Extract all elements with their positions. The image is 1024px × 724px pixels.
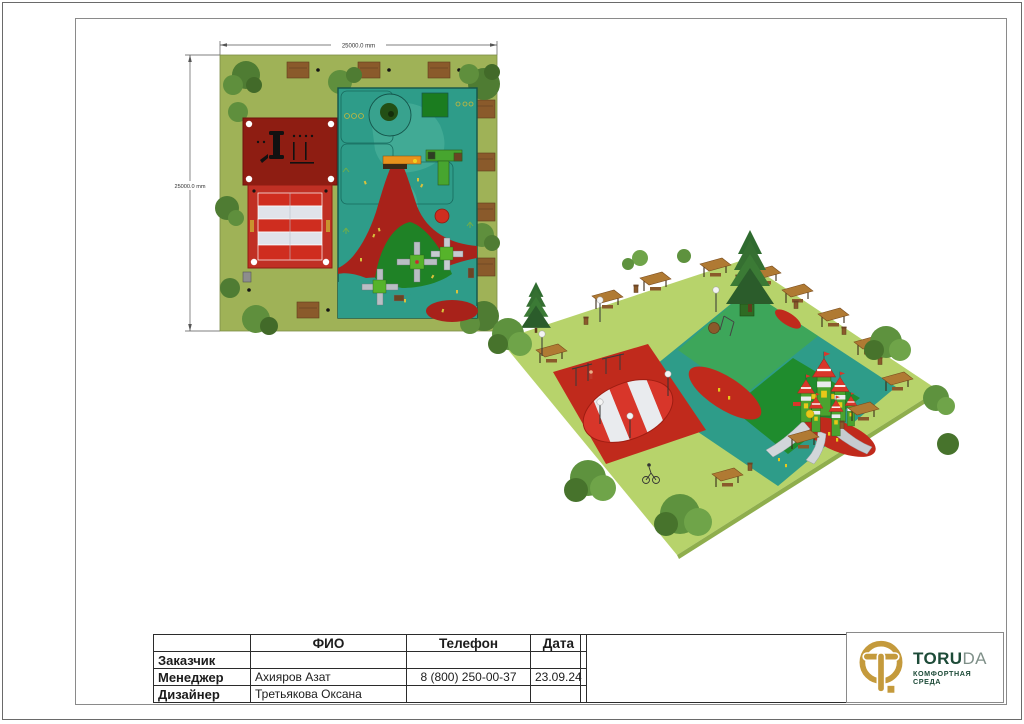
title-block-empty-cell [580,634,847,703]
table-row: Менеджер Ахияров Азат 8 (800) 250-00-37 … [154,669,587,686]
plan-height-dimension: 25000.0 mm [170,55,220,331]
row-customer-phone [407,652,531,669]
brand-tagline-line2: СРЕДА [913,678,987,685]
table-row: Дизайнер Третьякова Оксана [154,686,587,703]
company-logo: TORUDA КОМФОРТНАЯ СРЕДА [846,632,1004,703]
row-designer-date [531,686,587,703]
brand-name-light: DA [962,650,986,667]
canopy-zone [248,185,332,268]
row-manager-date: 23.09.24 [531,669,587,686]
playground-zone [338,88,478,322]
person-icon [589,370,593,379]
row-designer-phone [407,686,531,703]
row-manager-phone: 8 (800) 250-00-37 [407,669,531,686]
row-designer-label: Дизайнер [154,686,251,703]
drawing-sheet: 25000.0 mm 25000.0 mm [0,0,1024,724]
plan-width-dimension: 25000.0 mm [220,41,497,56]
red-dome [435,209,449,223]
header-phone: Телефон [407,635,531,652]
brand-name: TORUDA [913,650,987,667]
green-square-zone [422,93,448,117]
plan-width-label: 25000.0 mm [342,44,375,50]
render-3d-view [488,226,956,571]
row-manager-label: Менеджер [154,669,251,686]
title-block: ФИО Телефон Дата Заказчик Менеджер Ахияр… [153,634,587,703]
header-fio: ФИО [251,635,407,652]
spruce-tree-icon [521,282,551,333]
title-block-corner-cell [154,635,251,652]
row-designer-fio: Третьякова Оксана [251,686,407,703]
brand-tagline-line1: КОМФОРТНАЯ [913,670,987,677]
plan-view: 25000.0 mm 25000.0 mm [170,30,510,340]
toruda-logo-icon [855,638,907,698]
row-customer-fio [251,652,407,669]
table-row: Заказчик [154,652,587,669]
workout-zone [243,118,337,185]
kiosk-icon [243,272,251,282]
row-manager-fio: Ахияров Азат [251,669,407,686]
plan-height-label: 25000.0 mm [174,184,205,190]
header-date: Дата [531,635,587,652]
row-customer-label: Заказчик [154,652,251,669]
brand-name-bold: TORU [913,650,962,667]
row-customer-date [531,652,587,669]
